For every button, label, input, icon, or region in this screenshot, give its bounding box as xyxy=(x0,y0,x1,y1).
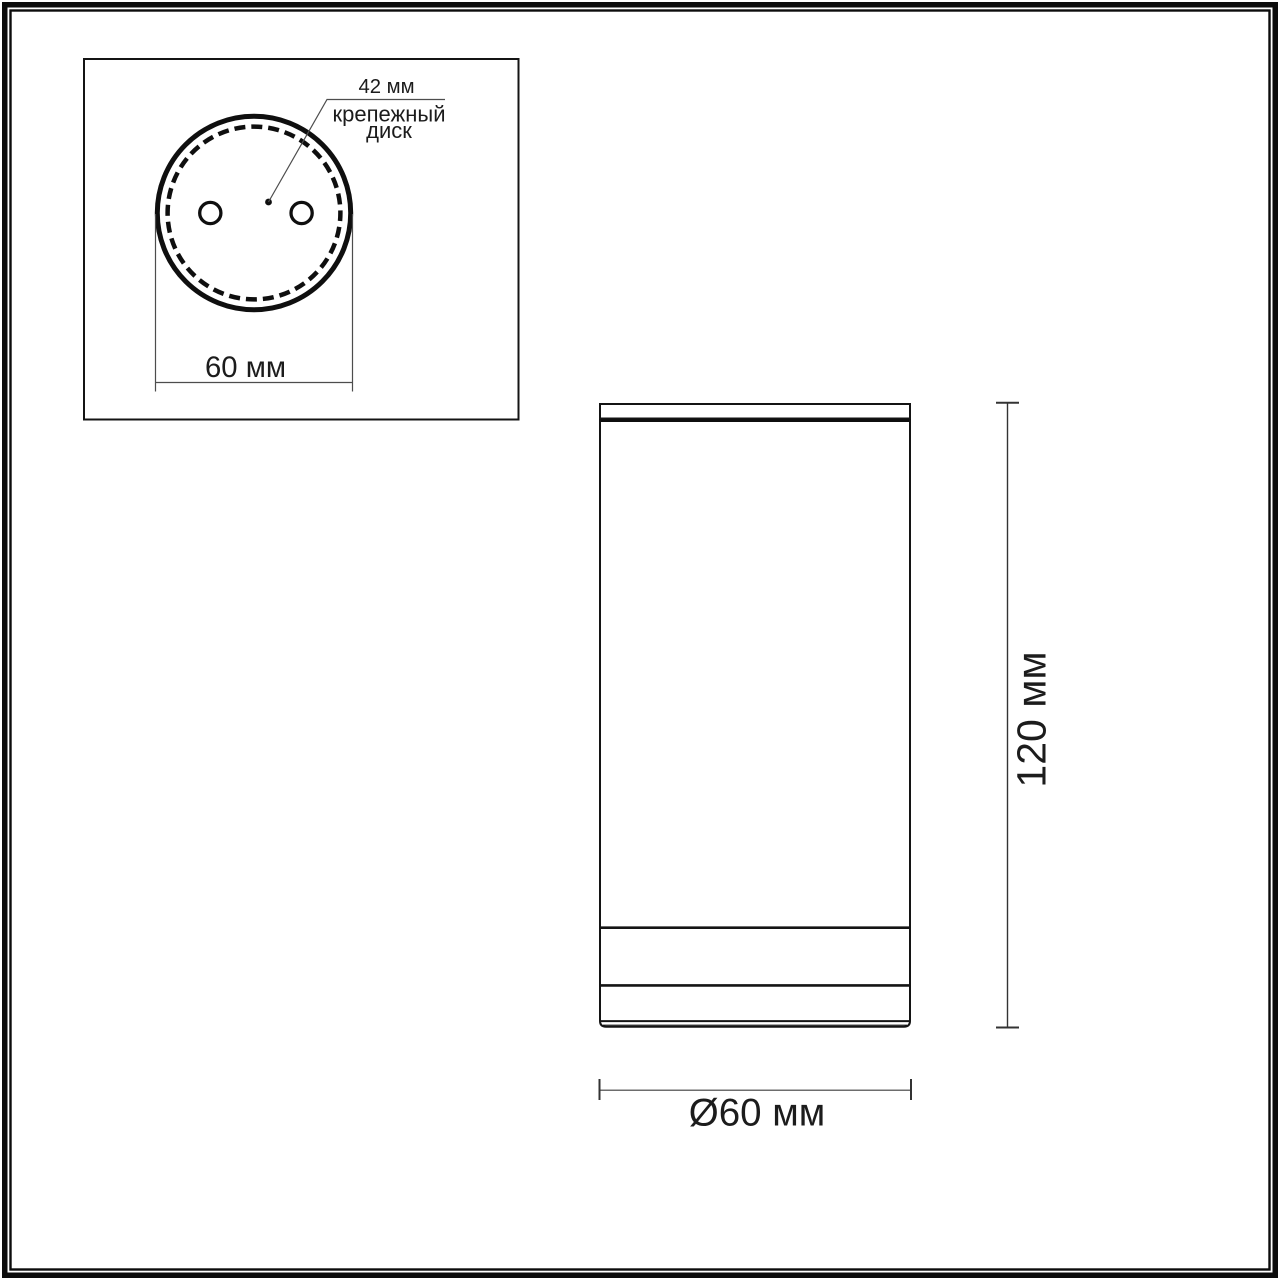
svg-text:120 мм: 120 мм xyxy=(1009,651,1055,787)
svg-text:42 мм: 42 мм xyxy=(358,76,414,98)
svg-text:60 мм: 60 мм xyxy=(205,351,286,384)
svg-text:Ø60 мм: Ø60 мм xyxy=(689,1092,825,1135)
svg-text:диск: диск xyxy=(366,118,412,143)
